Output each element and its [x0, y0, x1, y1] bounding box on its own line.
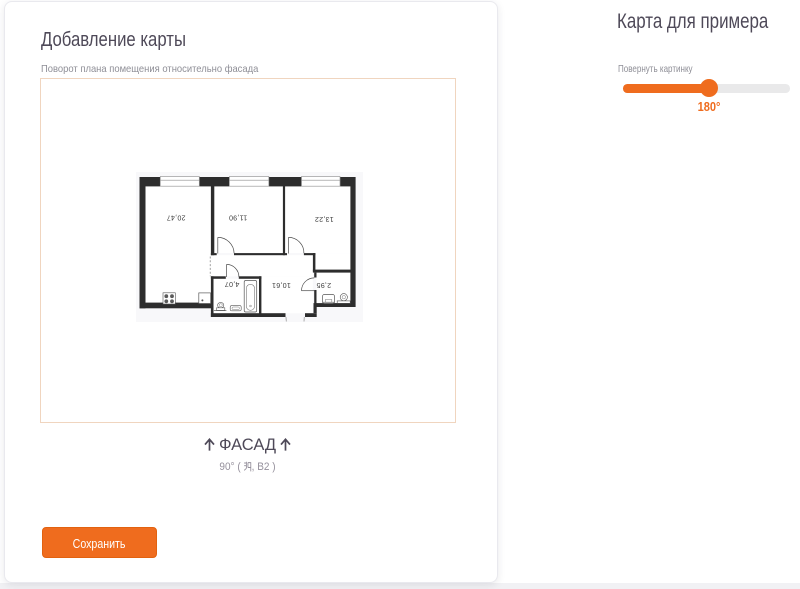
- svg-text:2,95: 2,95: [316, 281, 331, 289]
- svg-text:20,47: 20,47: [166, 213, 185, 221]
- svg-text:11,90: 11,90: [229, 213, 247, 221]
- svg-text:4,07: 4,07: [225, 280, 240, 288]
- svg-text:13,22: 13,22: [315, 215, 334, 223]
- svg-text:10,61: 10,61: [272, 281, 291, 289]
